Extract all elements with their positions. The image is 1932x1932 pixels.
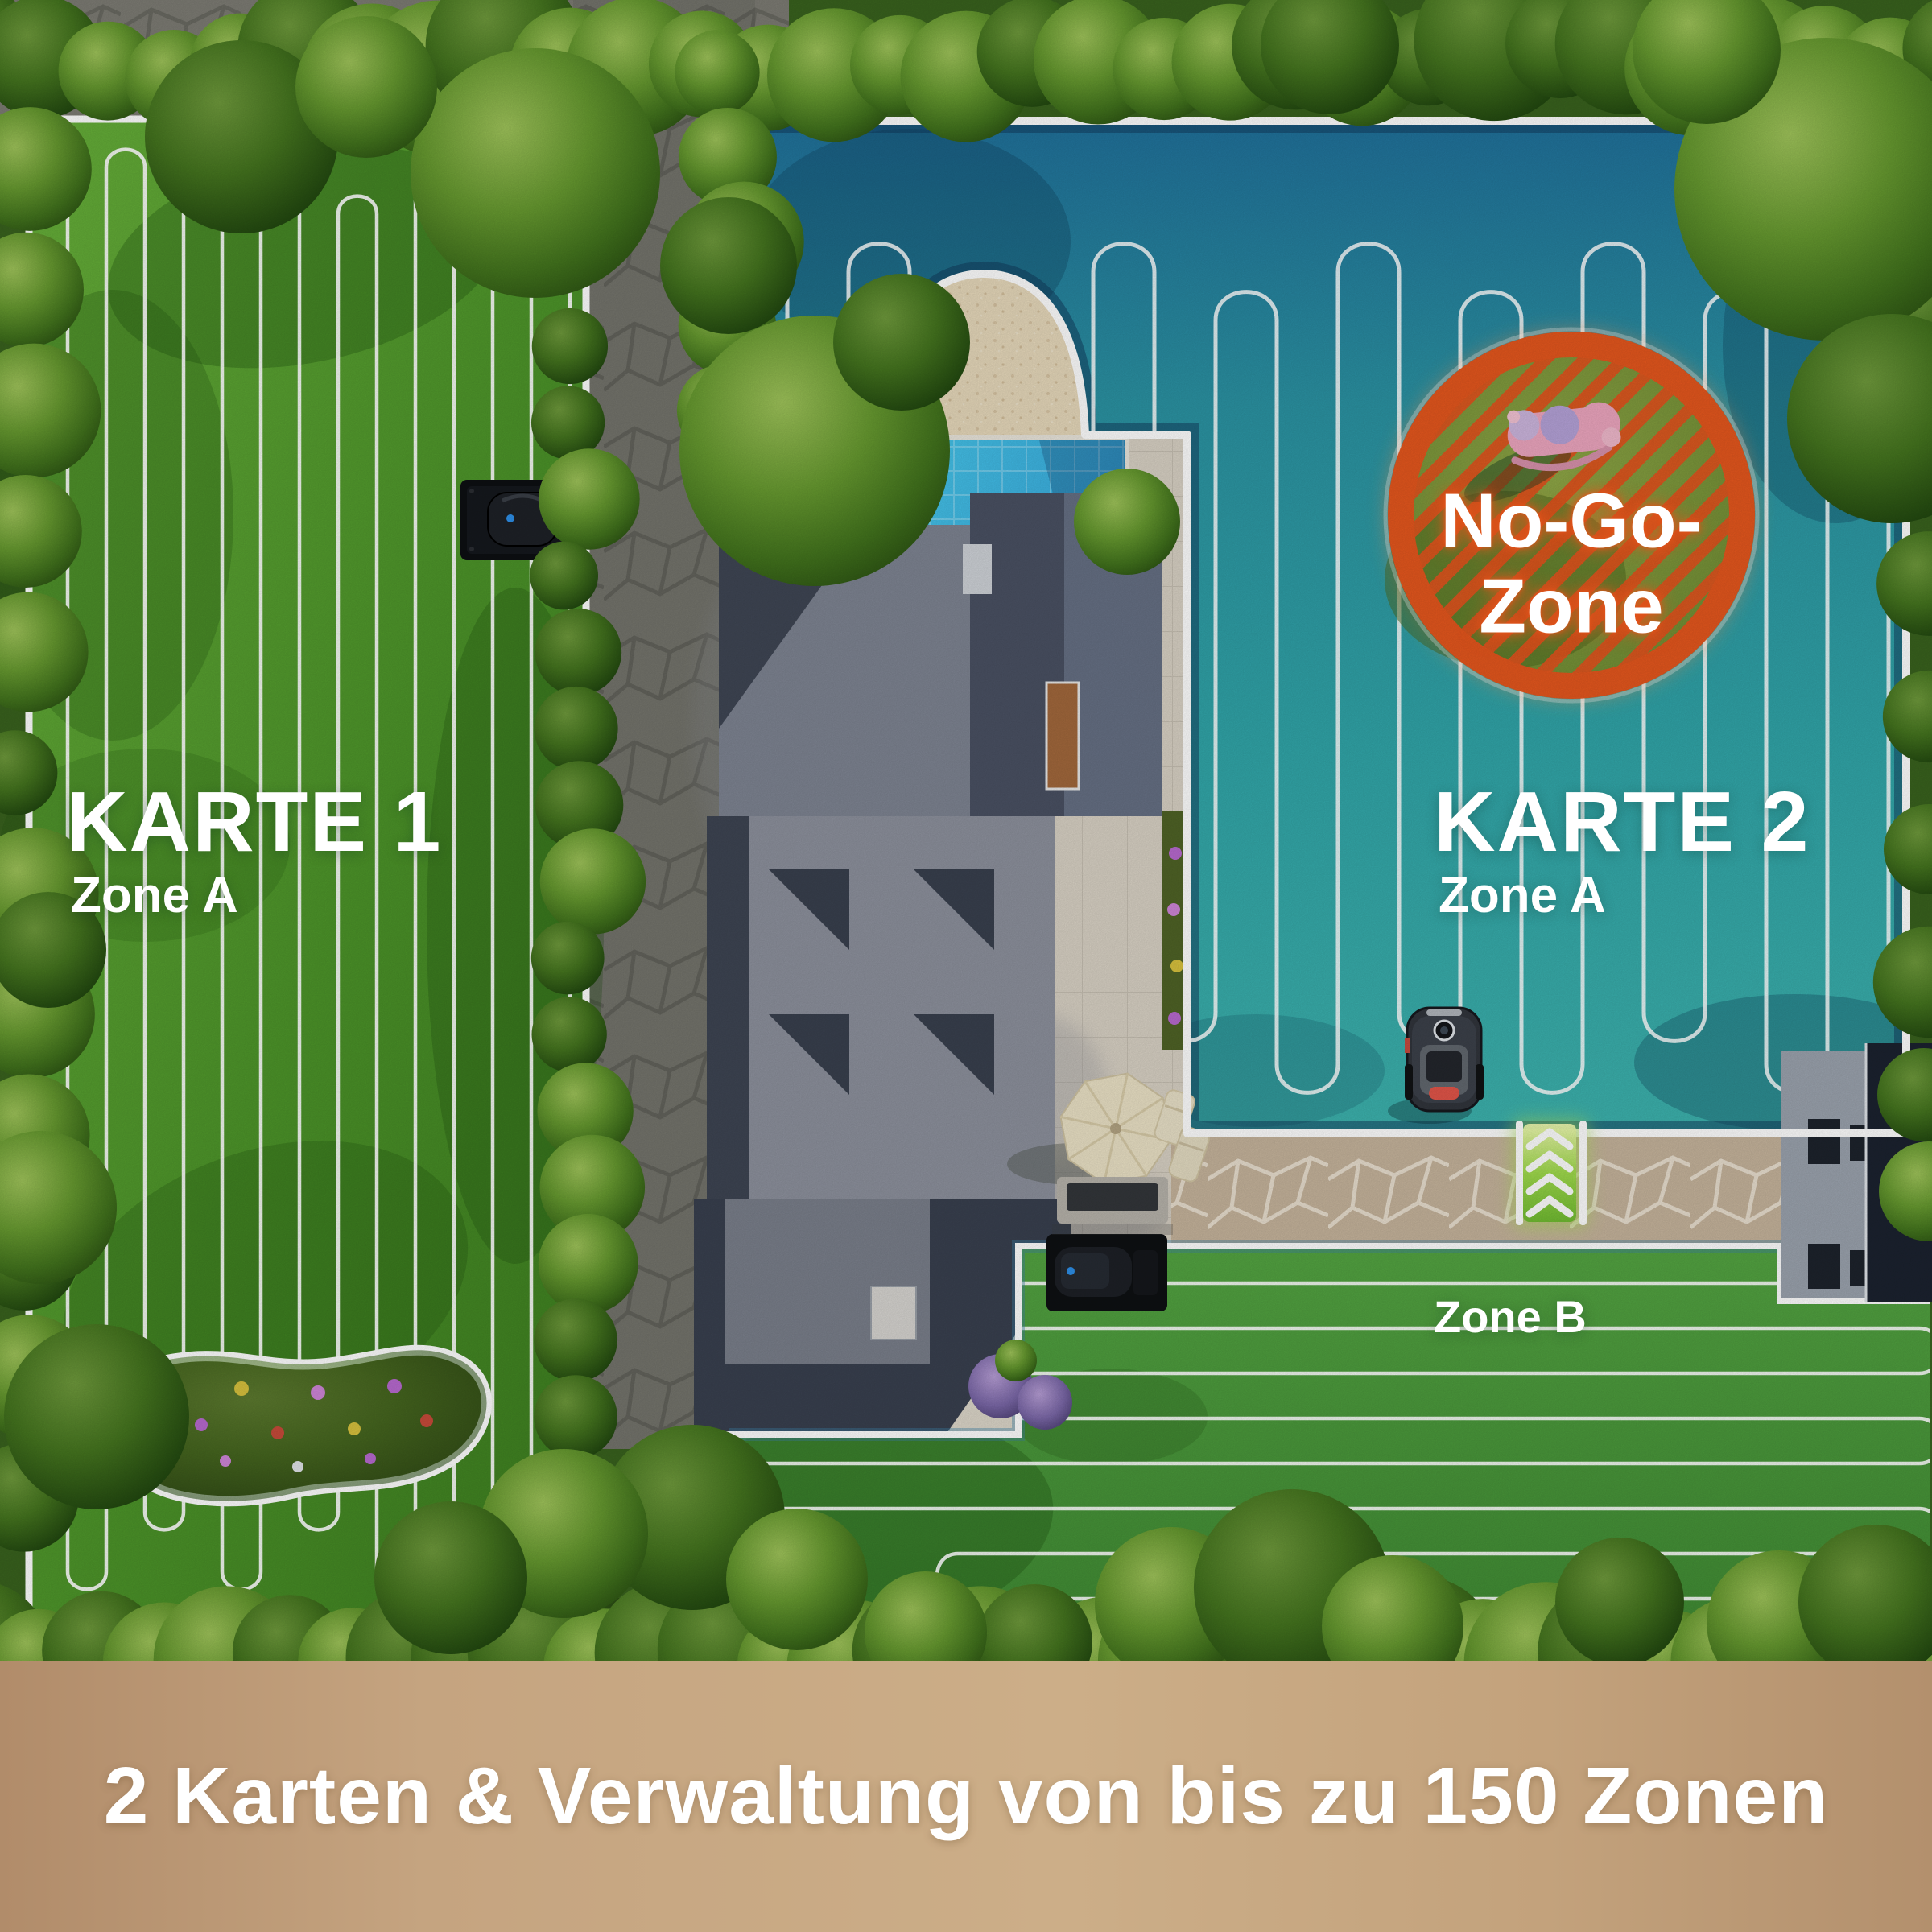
no-go-zone-label-line1: No-Go- — [1440, 478, 1702, 563]
map2-title: KARTE 2 — [1434, 779, 1810, 865]
marketing-image: KARTE 1 Zone A KARTE 2 Zone A Zone B No-… — [0, 0, 1932, 1932]
map2-zone-b-label: Zone B — [1434, 1294, 1587, 1340]
no-go-zone-label-line2: Zone — [1440, 563, 1702, 649]
map1-title: KARTE 1 — [66, 779, 443, 865]
map1-zone-a-label: Zone A — [71, 871, 238, 921]
map2-zone-a-label: Zone A — [1439, 871, 1606, 921]
caption: 2 Karten & Verwaltung von bis zu 150 Zon… — [104, 1750, 1828, 1843]
caption-bar: 2 Karten & Verwaltung von bis zu 150 Zon… — [0, 1661, 1932, 1932]
no-go-zone-label: No-Go- Zone — [1440, 478, 1702, 648]
